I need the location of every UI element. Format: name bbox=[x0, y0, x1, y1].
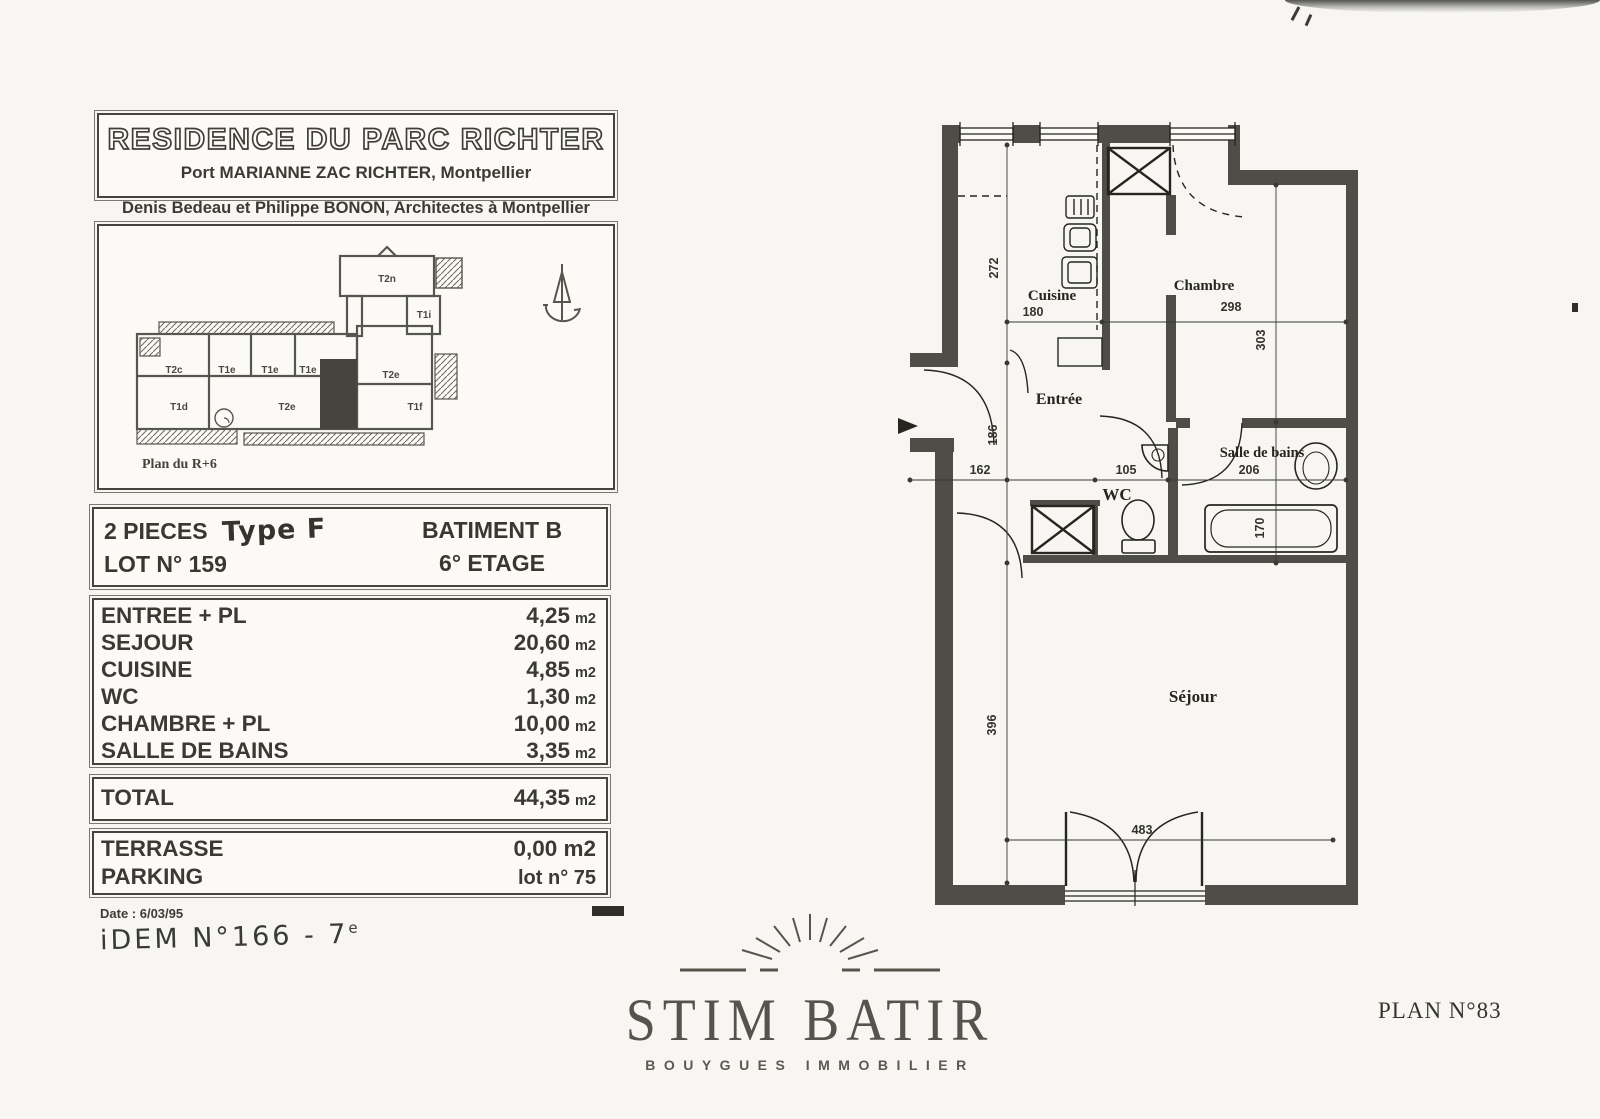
room-label: WC bbox=[101, 683, 139, 710]
table-row: SEJOUR 20,60m2 bbox=[94, 629, 606, 656]
dimension-lines bbox=[908, 143, 1348, 885]
total-area: 44,35 bbox=[492, 784, 570, 811]
table-row: ENTREE + PL 4,25m2 bbox=[94, 602, 606, 629]
scan-mark bbox=[1291, 6, 1300, 20]
duct-shaft-icon bbox=[1032, 148, 1170, 553]
dim-206: 206 bbox=[1239, 463, 1260, 477]
room-label: SEJOUR bbox=[101, 629, 194, 656]
annex-value: lot n° 75 bbox=[518, 864, 596, 892]
architects-line: Denis Bedeau et Philippe BONON, Architec… bbox=[97, 199, 615, 218]
overview-floor-plan: T2n T1i T2c T1e T1e T1e T2e T1f T1d T2e … bbox=[99, 226, 610, 484]
stim-batir-logo: STIM BATIR BOUYGUES IMMOBILIER bbox=[595, 912, 1025, 1073]
unit-label: T2n bbox=[378, 274, 396, 285]
room-label: CUISINE bbox=[101, 656, 192, 683]
dim-186: 186 bbox=[986, 425, 1000, 446]
unit-label: T2e bbox=[278, 402, 296, 413]
table-row: CUISINE 4,85m2 bbox=[94, 656, 606, 683]
annex-value: 0,00 m2 bbox=[513, 835, 596, 863]
compass-icon bbox=[543, 264, 582, 321]
logo-tagline: BOUYGUES IMMOBILIER bbox=[595, 1057, 1025, 1073]
unit-label: T2c bbox=[165, 365, 183, 376]
overview-plan-box: T2n T1i T2c T1e T1e T1e T2e T1f T1d T2e … bbox=[97, 224, 615, 490]
table-row: WC 1,30m2 bbox=[94, 683, 606, 710]
overview-caption: Plan du R+6 bbox=[142, 457, 217, 472]
handwritten-text: iDEM N°166 - 7 bbox=[100, 919, 349, 956]
residence-title: RESIDENCE DU PARC RICHTER bbox=[99, 123, 613, 157]
table-row: TERRASSE 0,00 m2 bbox=[94, 835, 606, 863]
area-unit: m2 bbox=[575, 788, 596, 815]
dim-162: 162 bbox=[970, 463, 991, 477]
lot-box: 2 PIECESType F LOT N° 159 BATIMENT B 6° … bbox=[92, 507, 608, 587]
dim-483: 483 bbox=[1132, 823, 1153, 837]
lot-number: LOT N° 159 bbox=[104, 548, 392, 581]
handwritten-sup: e bbox=[348, 919, 361, 937]
room-area: 10,00 bbox=[492, 710, 570, 737]
scanned-floorplan-document: { "header": { "title": "RESIDENCE DU PAR… bbox=[0, 0, 1600, 1119]
date-label: Date : 6/03/95 bbox=[100, 906, 183, 921]
unit-label: T1e bbox=[218, 365, 236, 376]
logo-name: STIM BATIR bbox=[595, 985, 1025, 1054]
areas-table: ENTREE + PL 4,25m2 SEJOUR 20,60m2 CUISIN… bbox=[92, 598, 608, 765]
lot-type-line: 2 PIECESType F bbox=[104, 514, 392, 548]
scan-smudge bbox=[1285, 0, 1600, 13]
handwritten-note: iDEM N°166 - 7e bbox=[100, 919, 362, 957]
unit-label: T1e bbox=[299, 365, 317, 376]
room-label-cuisine: Cuisine bbox=[1028, 288, 1077, 304]
unit-label: T1e bbox=[261, 365, 279, 376]
room-area: 20,60 bbox=[492, 629, 570, 656]
dim-272: 272 bbox=[987, 258, 1001, 279]
kitchen-appliances-icon bbox=[958, 145, 1102, 366]
hand-basin-icon bbox=[1142, 445, 1168, 471]
table-row: CHAMBRE + PL 10,00m2 bbox=[94, 710, 606, 737]
room-area: 3,35 bbox=[492, 737, 570, 764]
pieces-count: 2 PIECES bbox=[104, 518, 208, 544]
type-handwritten: Type F bbox=[221, 512, 326, 549]
unit-label: T1d bbox=[170, 402, 188, 413]
unit-label: T1i bbox=[417, 310, 432, 321]
room-label-wc: WC bbox=[1102, 485, 1131, 504]
entrance-arrow-icon bbox=[898, 418, 918, 434]
scan-speck bbox=[1572, 303, 1578, 312]
batiment-label: BATIMENT B bbox=[392, 514, 592, 547]
plan-number: PLAN N°83 bbox=[1378, 998, 1502, 1024]
annex-label: PARKING bbox=[101, 863, 203, 891]
room-label: ENTREE + PL bbox=[101, 602, 247, 629]
dim-303: 303 bbox=[1254, 330, 1268, 351]
room-area: 1,30 bbox=[492, 683, 570, 710]
sunburst-icon bbox=[650, 912, 970, 984]
dim-105: 105 bbox=[1116, 463, 1137, 477]
dim-180: 180 bbox=[1023, 305, 1044, 319]
room-label: SALLE DE BAINS bbox=[101, 737, 289, 764]
total-box: TOTAL 44,35m2 bbox=[92, 777, 608, 821]
annex-label: TERRASSE bbox=[101, 835, 224, 863]
etage-label: 6° ETAGE bbox=[392, 547, 592, 580]
room-area: 4,25 bbox=[492, 602, 570, 629]
table-row: PARKING lot n° 75 bbox=[94, 863, 606, 891]
selected-unit-highlight bbox=[320, 359, 357, 429]
unit-label: T2e bbox=[382, 370, 400, 381]
interior-walls bbox=[1023, 143, 1346, 563]
total-label: TOTAL bbox=[101, 784, 174, 811]
room-label: CHAMBRE + PL bbox=[101, 710, 270, 737]
table-row: SALLE DE BAINS 3,35m2 bbox=[94, 737, 606, 764]
room-label-sejour: Séjour bbox=[1169, 687, 1218, 706]
windows bbox=[960, 122, 1235, 146]
room-area: 4,85 bbox=[492, 656, 570, 683]
dim-298: 298 bbox=[1221, 300, 1242, 314]
residence-subtitle: Port MARIANNE ZAC RICHTER, Montpellier bbox=[99, 163, 613, 183]
header-box: RESIDENCE DU PARC RICHTER Port MARIANNE … bbox=[97, 113, 615, 198]
room-label-chambre: Chambre bbox=[1174, 278, 1235, 294]
apartment-floor-plan: 272 180 298 303 186 162 105 206 170 396 … bbox=[880, 100, 1380, 920]
area-unit: m2 bbox=[575, 741, 596, 768]
room-label-entree: Entrée bbox=[1036, 391, 1082, 408]
scan-mark bbox=[1305, 14, 1312, 26]
dim-396: 396 bbox=[985, 715, 999, 736]
bathtub-icon bbox=[1205, 505, 1337, 552]
annex-box: TERRASSE 0,00 m2 PARKING lot n° 75 bbox=[92, 831, 608, 895]
unit-label: T1f bbox=[408, 402, 424, 413]
toilet-icon bbox=[1122, 500, 1154, 540]
dim-170: 170 bbox=[1253, 518, 1267, 539]
room-label-sdb: Salle de bains bbox=[1220, 445, 1305, 461]
